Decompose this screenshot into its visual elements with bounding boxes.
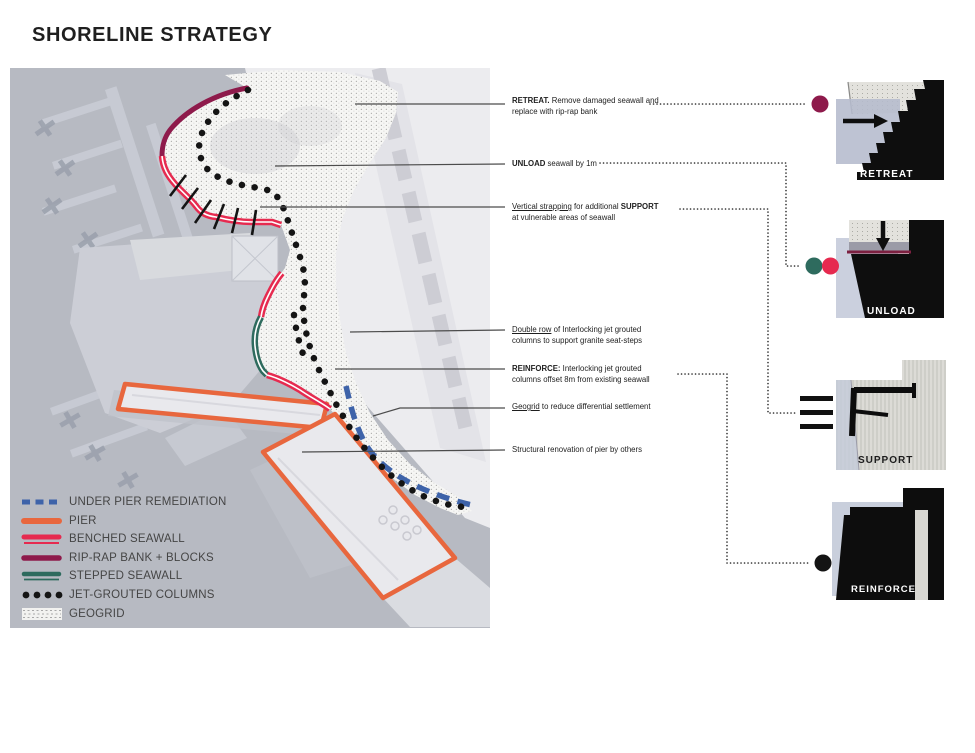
- annotation-pier-renovation: Structural renovation of pier by others: [512, 444, 697, 455]
- legend: UNDER PIER REMEDIATION PIER BENCHED SEAW…: [20, 495, 227, 625]
- legend-item-riprap-bank: RIP-RAP BANK + BLOCKS: [20, 551, 227, 565]
- annotation-reinforce: REINFORCE: Interlocking jet grouted colu…: [512, 363, 697, 385]
- retreat-key-dot: [812, 96, 829, 113]
- legend-label: BENCHED SEAWALL: [69, 533, 185, 545]
- stipple-swatch: [20, 607, 64, 621]
- annotation-retreat: RETREAT. Remove damaged seawall and repl…: [512, 95, 697, 117]
- dots-swatch: [20, 588, 64, 602]
- legend-label: JET-GROUTED COLUMNS: [69, 589, 215, 601]
- legend-item-jet-grouted-columns: JET-GROUTED COLUMNS: [20, 588, 227, 602]
- annotation-geogrid: Geogrid to reduce differential settlemen…: [512, 401, 697, 412]
- legend-item-pier: PIER: [20, 514, 227, 528]
- double-line-swatch: [20, 569, 64, 583]
- legend-label: RIP-RAP BANK + BLOCKS: [69, 552, 214, 564]
- line-swatch: [20, 551, 64, 565]
- line-swatch: [20, 514, 64, 528]
- annotation-unload: UNLOAD seawall by 1m: [512, 158, 697, 169]
- support-key-bars: [800, 396, 833, 429]
- reinforce-key-dot: [815, 555, 832, 572]
- legend-label: UNDER PIER REMEDIATION: [69, 496, 227, 508]
- page-title: SHORELINE STRATEGY: [32, 24, 272, 47]
- unload-key-dot-teal: [806, 258, 823, 275]
- legend-item-stepped-seawall: STEPPED SEAWALL: [20, 569, 227, 583]
- legend-label: STEPPED SEAWALL: [69, 570, 182, 582]
- terrain-shading: [278, 106, 342, 146]
- detail-reinforce-diagram: REINFORCE: [832, 488, 944, 600]
- dashed-line-swatch: [20, 495, 64, 509]
- legend-label: GEOGRID: [69, 608, 125, 620]
- annotation-support: Vertical strapping for additional SUPPOR…: [512, 201, 697, 223]
- detail-label-support: SUPPORT: [858, 455, 913, 466]
- detail-label-retreat: RETREAT: [860, 169, 913, 180]
- detail-label-reinforce: REINFORCE: [851, 584, 916, 595]
- annotation-double-row: Double row of Interlocking jet grouted c…: [512, 324, 697, 346]
- legend-label: PIER: [69, 515, 97, 527]
- legend-item-under-pier-remediation: UNDER PIER REMEDIATION: [20, 495, 227, 509]
- legend-item-benched-seawall: BENCHED SEAWALL: [20, 532, 227, 546]
- double-line-swatch: [20, 532, 64, 546]
- detail-support-diagram: SUPPORT: [836, 360, 946, 470]
- legend-item-geogrid: GEOGRID: [20, 607, 227, 621]
- detail-label-unload: UNLOAD: [867, 306, 916, 317]
- detail-unload-diagram: UNLOAD: [836, 218, 944, 318]
- detail-retreat-diagram: RETREAT: [836, 80, 944, 182]
- jet-column-shape: [915, 510, 928, 600]
